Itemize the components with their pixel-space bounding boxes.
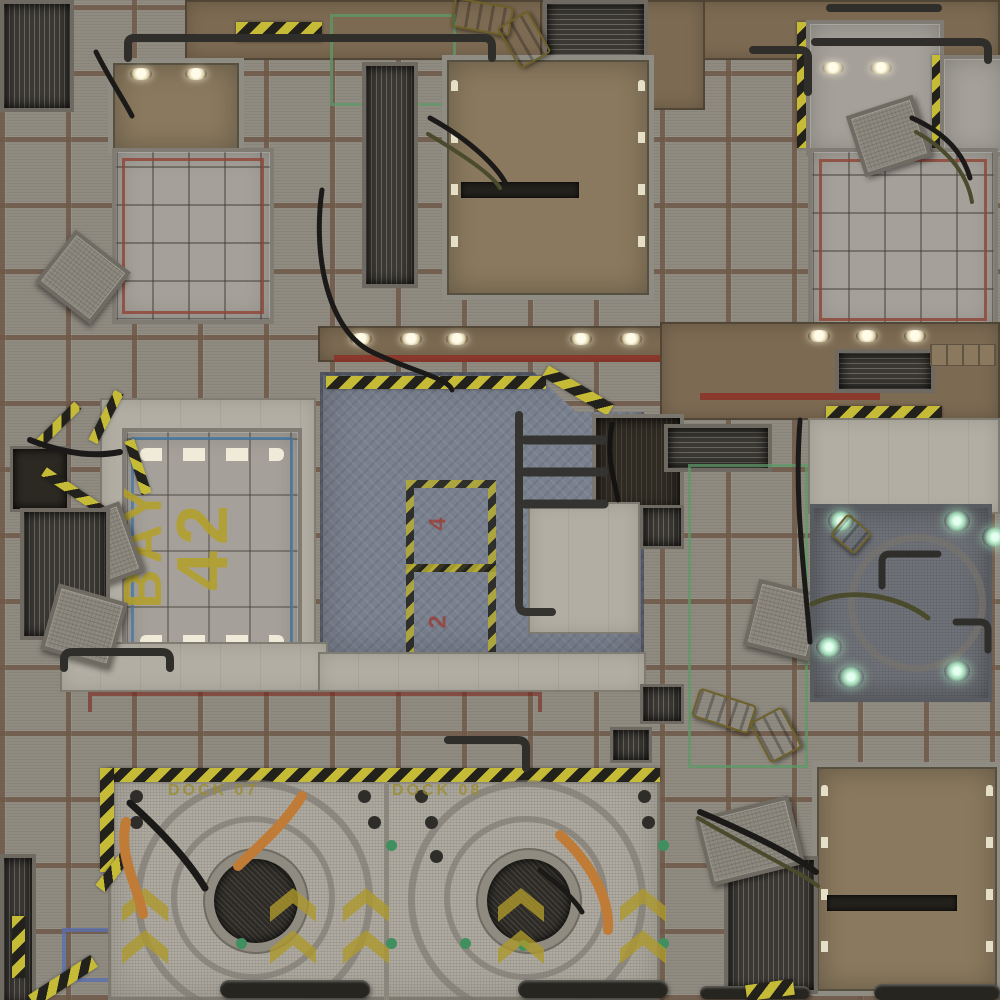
- industrial-floor-map: 4 2 BAY 42: [0, 0, 1000, 1000]
- small-vent-tile: [610, 727, 652, 763]
- bay-number: 42: [169, 450, 237, 640]
- red-paint-border: [819, 159, 987, 321]
- wall-lamp: [446, 333, 468, 345]
- wall-lamp: [856, 330, 878, 342]
- panel-side-lights: [638, 80, 645, 275]
- hatch-panel-red-right: [808, 148, 998, 332]
- panel-slot: [461, 182, 579, 198]
- indicator-dot-field: [236, 938, 247, 949]
- wall-lamp: [400, 333, 422, 345]
- floor-handle: [874, 984, 1000, 1000]
- wall-lamp: [620, 333, 642, 345]
- hazard-corner-strip: [12, 916, 25, 978]
- wall-lamp: [130, 68, 152, 80]
- hazard-marked-bay-2: 2: [406, 564, 496, 664]
- chevron-marking: [122, 888, 168, 964]
- brick-block: [930, 344, 996, 366]
- chevron-marking: [498, 888, 544, 964]
- wall-lamp: [904, 330, 926, 342]
- small-vent-tile: [640, 684, 684, 724]
- slab-ne-far: [940, 55, 1000, 156]
- wall-lamp: [185, 68, 207, 80]
- dock-08-label: DOCK 08: [392, 782, 482, 800]
- red-paint-border: [122, 158, 264, 314]
- hatch-panel-red-left: [112, 148, 274, 324]
- wall-lamp: [870, 62, 892, 74]
- wall-grille-inset: [835, 349, 935, 393]
- green-pad-light: [944, 510, 970, 532]
- dock-deck: [108, 768, 660, 1000]
- vent-grille-vertical: [362, 62, 418, 288]
- platform-band-right: [808, 418, 1000, 514]
- green-pad-light: [838, 666, 864, 688]
- landing-pad-ring: [848, 534, 986, 672]
- small-vent-tile: [640, 505, 684, 549]
- light-slab-center: [528, 502, 640, 634]
- wall-lamp: [570, 333, 592, 345]
- green-pad-light: [944, 660, 970, 682]
- chevron-marking: [270, 888, 316, 964]
- hazard-strip-top: [236, 22, 322, 42]
- panel-side-lights: [821, 785, 828, 975]
- red-paint-stripe: [700, 393, 880, 400]
- hazard-dock-left-edge: [100, 768, 114, 872]
- concrete-apron-mid: [318, 652, 646, 692]
- access-panel-bottom-right: [812, 762, 1000, 996]
- hazard-dock-edge: [108, 768, 660, 782]
- bolt-field: [130, 790, 143, 803]
- floor-number-mark: 2: [425, 615, 453, 628]
- red-zone-outline: [88, 692, 542, 712]
- red-paint-stripe: [334, 355, 702, 362]
- hazard-edge-ne: [797, 22, 806, 148]
- hazard-marked-bay-1: 4: [406, 480, 496, 572]
- hazard-tape-scrap: [35, 402, 82, 449]
- hazard-deck-edge: [326, 376, 546, 389]
- wall-lamp: [350, 333, 372, 345]
- floor-handle: [220, 980, 370, 998]
- green-pad-light: [816, 636, 842, 658]
- wall-lamp: [822, 62, 844, 74]
- vent-grille-top-left: [0, 0, 74, 112]
- chevron-marking: [343, 888, 389, 964]
- tan-slab-topleft: [108, 58, 244, 156]
- panel-slot: [827, 895, 957, 911]
- hazard-edge-ne-far: [932, 55, 940, 148]
- dock-07-label: DOCK 07: [168, 782, 258, 800]
- access-panel-top-center: [442, 55, 654, 300]
- wall-lamp: [808, 330, 830, 342]
- floor-number-mark: 4: [425, 517, 453, 530]
- chevron-marking: [620, 888, 666, 964]
- floor-handle: [518, 980, 668, 998]
- panel-side-lights: [451, 80, 458, 275]
- panel-side-lights: [986, 785, 993, 975]
